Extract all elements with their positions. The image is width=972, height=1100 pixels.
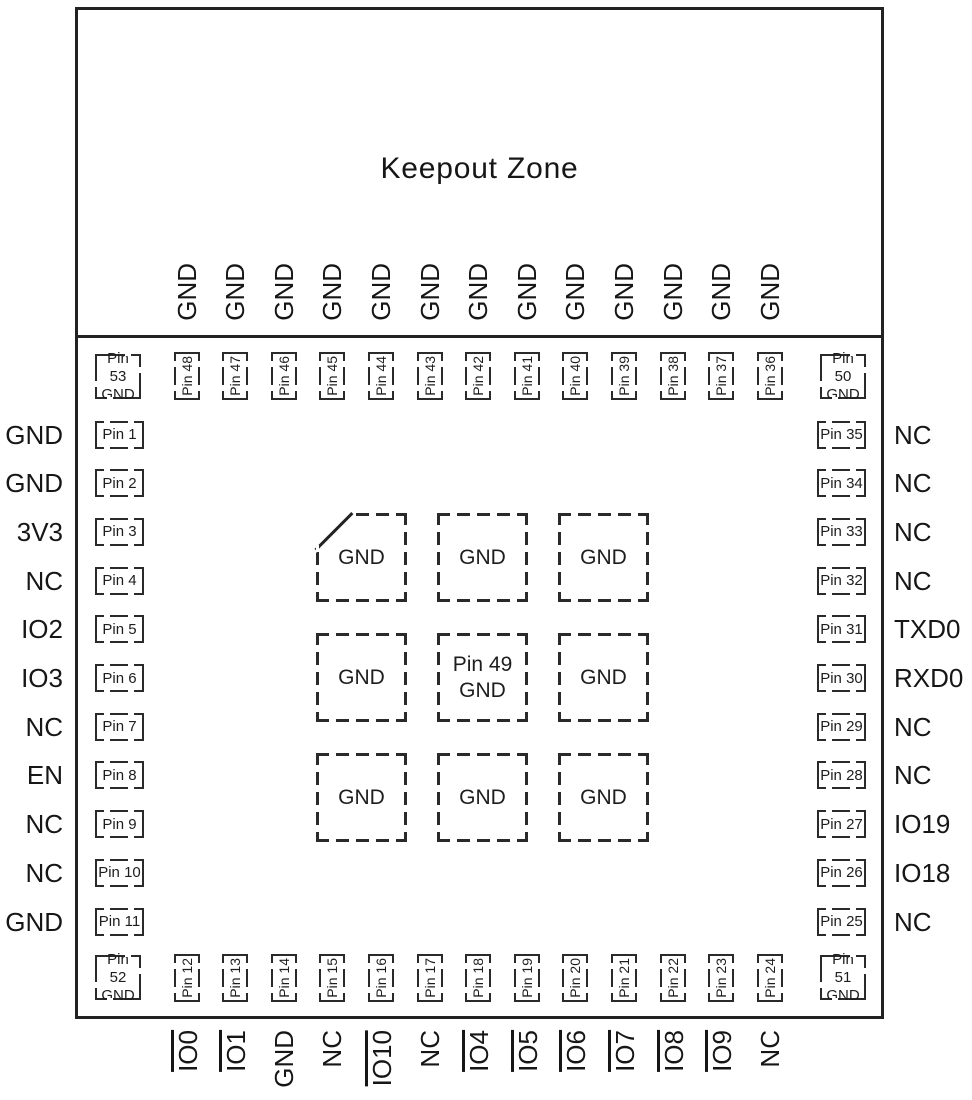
center-gnd-pad: GND <box>558 633 649 722</box>
signal-label-20: IO6 <box>559 1030 590 1072</box>
pin-number: Pin 14 <box>276 958 292 998</box>
pin-number: Pin 17 <box>422 958 438 998</box>
signal-label-45: GND <box>318 263 346 321</box>
pin-number: Pin 25 <box>820 913 863 930</box>
pin-pad-28: Pin 28 <box>817 761 866 789</box>
pin-pad-7: Pin 7 <box>95 713 144 741</box>
pin-number: Pin 27 <box>820 816 863 833</box>
pin-number: Pin 16 <box>373 958 389 998</box>
pad-label: GND <box>338 545 385 571</box>
pin-pad-30: Pin 30 <box>817 664 866 692</box>
pin-number: Pin 9 <box>102 816 136 833</box>
center-gnd-pad: GND <box>437 753 528 842</box>
pin-number: Pin 33 <box>820 523 863 540</box>
signal-label-21: IO7 <box>608 1030 639 1072</box>
pin-pad-31: Pin 31 <box>817 615 866 643</box>
signal-label-17: NC <box>416 1030 444 1068</box>
pin-pad-36: Pin 36 <box>757 352 783 400</box>
pin-pad-8: Pin 8 <box>95 761 144 789</box>
pin-number: Pin 2 <box>102 475 136 492</box>
signal-label-11: GND <box>5 908 63 936</box>
pin-number: Pin 11 <box>99 913 140 930</box>
pin-number: Pin 49 <box>453 652 513 678</box>
signal-label-27: IO19 <box>894 810 950 838</box>
pin-pad-2: Pin 2 <box>95 469 144 497</box>
pin-number: Pin 7 <box>102 718 136 735</box>
center-pad-pin-49: Pin 49GND <box>437 633 528 722</box>
pin-number: Pin 50 <box>822 350 864 386</box>
pin-pad-20: Pin 20 <box>562 954 588 1002</box>
signal-label-12: IO0 <box>171 1030 202 1072</box>
pin-number: Pin 28 <box>820 767 863 784</box>
signal-label-41: GND <box>513 263 541 321</box>
pin-pad-12: Pin 12 <box>174 954 200 1002</box>
pin-number: Pin 18 <box>470 958 486 998</box>
signal-label-19: IO5 <box>511 1030 542 1072</box>
pin-pad-13: Pin 13 <box>222 954 248 1002</box>
signal-label-44: GND <box>367 263 395 321</box>
pin-number: Pin 40 <box>567 356 583 396</box>
pad-label: GND <box>338 785 385 811</box>
center-gnd-pad: GND <box>437 513 528 602</box>
pin-number: Pin 30 <box>820 670 863 687</box>
pin-number: Pin 10 <box>98 864 141 881</box>
pin-pad-37: Pin 37 <box>708 352 734 400</box>
signal-label-13: IO1 <box>219 1030 250 1072</box>
pin-pad-42: Pin 42 <box>465 352 491 400</box>
pin-pad-41: Pin 41 <box>514 352 540 400</box>
signal-label-16: IO10 <box>365 1030 396 1086</box>
signal-label-42: GND <box>464 263 492 321</box>
pin-pad-33: Pin 33 <box>817 518 866 546</box>
signal-label-33: NC <box>894 518 932 546</box>
pin-number: Pin 31 <box>820 621 863 638</box>
signal-label-5: IO2 <box>21 615 63 643</box>
pin-number: Pin 26 <box>820 864 863 881</box>
pin-number: Pin 52 <box>97 951 139 987</box>
pin-number: Pin 5 <box>102 621 136 638</box>
signal-label-26: IO18 <box>894 859 950 887</box>
signal-label-1: GND <box>5 421 63 449</box>
pin-number: Pin 15 <box>324 958 340 998</box>
pin-number: Pin 3 <box>102 523 136 540</box>
pin-signal: GND <box>101 386 134 404</box>
pin-pad-11: Pin 11 <box>95 908 144 936</box>
pin-number: Pin 47 <box>227 356 243 396</box>
signal-label-2: GND <box>5 469 63 497</box>
pin-number: Pin 1 <box>102 426 136 443</box>
pad-label: GND <box>459 785 506 811</box>
signal-label-14: GND <box>270 1030 298 1088</box>
signal-label-40: GND <box>561 263 589 321</box>
pin-pad-32: Pin 32 <box>817 567 866 595</box>
pin-pad-19: Pin 19 <box>514 954 540 1002</box>
pin-pad-4: Pin 4 <box>95 567 144 595</box>
signal-label-8: EN <box>27 761 63 789</box>
pin-number: Pin 6 <box>102 670 136 687</box>
pin-number: Pin 21 <box>616 958 632 998</box>
pin-pad-38: Pin 38 <box>660 352 686 400</box>
pin-pad-9: Pin 9 <box>95 810 144 838</box>
pin-number: Pin 38 <box>665 356 681 396</box>
signal-label-10: NC <box>25 859 63 887</box>
signal-label-9: NC <box>25 810 63 838</box>
signal-label-4: NC <box>25 567 63 595</box>
corner-pad-53: Pin 53GND <box>95 354 141 399</box>
corner-pad-50: Pin 50GND <box>820 354 866 399</box>
pin-number: Pin 43 <box>422 356 438 396</box>
pad-label: GND <box>580 785 627 811</box>
signal-label-39: GND <box>610 263 638 321</box>
pin-pad-35: Pin 35 <box>817 421 866 449</box>
pad-label: GND <box>580 545 627 571</box>
pin-pad-23: Pin 23 <box>708 954 734 1002</box>
pin-pad-34: Pin 34 <box>817 469 866 497</box>
pin-pad-26: Pin 26 <box>817 859 866 887</box>
pin-number: Pin 45 <box>324 356 340 396</box>
pin-pad-46: Pin 46 <box>271 352 297 400</box>
signal-label-22: IO8 <box>657 1030 688 1072</box>
signal-label-35: NC <box>894 421 932 449</box>
pin-number: Pin 32 <box>820 572 863 589</box>
pin-pad-16: Pin 16 <box>368 954 394 1002</box>
pin-pad-6: Pin 6 <box>95 664 144 692</box>
pin-number: Pin 39 <box>616 356 632 396</box>
signal-label-38: GND <box>659 263 687 321</box>
pin-number: Pin 13 <box>227 958 243 998</box>
signal-label-43: GND <box>416 263 444 321</box>
pad-label: GND <box>459 545 506 571</box>
signal-label-3: 3V3 <box>17 518 63 546</box>
pin-number: Pin 46 <box>276 356 292 396</box>
pin-number: Pin 19 <box>519 958 535 998</box>
pin-number: Pin 41 <box>519 356 535 396</box>
signal-label-31: TXD0 <box>894 615 960 643</box>
pin-number: Pin 4 <box>102 572 136 589</box>
pad-label: GND <box>338 665 385 691</box>
pad-label: GND <box>580 665 627 691</box>
pin-number: Pin 23 <box>713 958 729 998</box>
pin-signal: GND <box>826 386 859 404</box>
pin-number: Pin 34 <box>820 475 863 492</box>
pin-pad-40: Pin 40 <box>562 352 588 400</box>
pin-pad-1: Pin 1 <box>95 421 144 449</box>
pin-pad-29: Pin 29 <box>817 713 866 741</box>
signal-label-15: NC <box>318 1030 346 1068</box>
pin-pad-44: Pin 44 <box>368 352 394 400</box>
pin-number: Pin 35 <box>820 426 863 443</box>
pin-pad-48: Pin 48 <box>174 352 200 400</box>
pin-signal: GND <box>826 987 859 1005</box>
pad-label: GND <box>459 678 506 704</box>
pin-number: Pin 48 <box>179 356 195 396</box>
signal-label-36: GND <box>756 263 784 321</box>
pin-number: Pin 20 <box>567 958 583 998</box>
signal-label-37: GND <box>707 263 735 321</box>
center-gnd-pad: GND <box>558 753 649 842</box>
pin-number: Pin 29 <box>820 718 863 735</box>
center-gnd-pad: GND <box>316 513 407 602</box>
pin-pad-10: Pin 10 <box>95 859 144 887</box>
pin-pad-21: Pin 21 <box>611 954 637 1002</box>
signal-label-7: NC <box>25 713 63 741</box>
signal-label-28: NC <box>894 761 932 789</box>
pin-pad-17: Pin 17 <box>417 954 443 1002</box>
signal-label-23: IO9 <box>705 1030 736 1072</box>
pin-pad-43: Pin 43 <box>417 352 443 400</box>
pin-number: Pin 51 <box>822 951 864 987</box>
pin-pad-3: Pin 3 <box>95 518 144 546</box>
pin-number: Pin 8 <box>102 767 136 784</box>
keepout-zone-title: Keepout Zone <box>75 152 884 186</box>
pin-pad-45: Pin 45 <box>319 352 345 400</box>
signal-label-47: GND <box>221 263 249 321</box>
signal-label-30: RXD0 <box>894 664 963 692</box>
pinout-diagram: Keepout Zone Pin 48GNDPin 47GNDPin 46GND… <box>0 0 972 1100</box>
signal-label-29: NC <box>894 713 932 741</box>
corner-pad-51: Pin 51GND <box>820 955 866 1000</box>
pin-pad-14: Pin 14 <box>271 954 297 1002</box>
signal-label-32: NC <box>894 567 932 595</box>
pin-signal: GND <box>101 987 134 1005</box>
signal-label-25: NC <box>894 908 932 936</box>
pin-pad-5: Pin 5 <box>95 615 144 643</box>
pin-number: Pin 42 <box>470 356 486 396</box>
signal-label-18: IO4 <box>462 1030 493 1072</box>
signal-label-48: GND <box>173 263 201 321</box>
center-gnd-pad: GND <box>316 633 407 722</box>
corner-pad-52: Pin 52GND <box>95 955 141 1000</box>
center-gnd-pad: GND <box>558 513 649 602</box>
pin-number: Pin 37 <box>713 356 729 396</box>
pin-number: Pin 53 <box>97 350 139 386</box>
pin-number: Pin 36 <box>762 356 778 396</box>
pin-pad-39: Pin 39 <box>611 352 637 400</box>
pin-pad-18: Pin 18 <box>465 954 491 1002</box>
keepout-divider-line <box>75 335 884 338</box>
pin-number: Pin 22 <box>665 958 681 998</box>
pin-pad-25: Pin 25 <box>817 908 866 936</box>
signal-label-46: GND <box>270 263 298 321</box>
signal-label-24: NC <box>756 1030 784 1068</box>
pin-pad-47: Pin 47 <box>222 352 248 400</box>
pin-pad-27: Pin 27 <box>817 810 866 838</box>
pin-pad-15: Pin 15 <box>319 954 345 1002</box>
signal-label-6: IO3 <box>21 664 63 692</box>
pin-number: Pin 24 <box>762 958 778 998</box>
pin-number: Pin 44 <box>373 356 389 396</box>
pin-number: Pin 12 <box>179 958 195 998</box>
pin-pad-22: Pin 22 <box>660 954 686 1002</box>
center-gnd-pad: GND <box>316 753 407 842</box>
pin-pad-24: Pin 24 <box>757 954 783 1002</box>
signal-label-34: NC <box>894 469 932 497</box>
